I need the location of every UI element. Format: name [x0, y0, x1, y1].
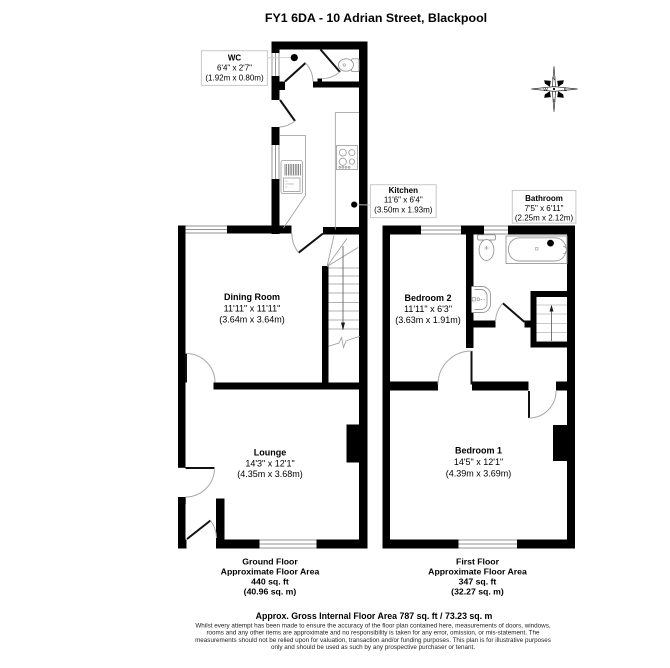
svg-text:(1.92m x 0.80m): (1.92m x 0.80m) — [205, 74, 264, 83]
svg-text:11'6" x 6'4": 11'6" x 6'4" — [384, 196, 423, 205]
svg-text:440 sq. ft: 440 sq. ft — [251, 577, 289, 587]
svg-text:(3.63m x 1.91m): (3.63m x 1.91m) — [395, 315, 461, 325]
svg-text:Lounge: Lounge — [254, 448, 287, 458]
svg-text:rooms and any other items are: rooms and any other items are approximat… — [206, 630, 540, 637]
svg-text:Bathroom: Bathroom — [525, 194, 563, 203]
svg-text:(32.27 sq. m): (32.27 sq. m) — [451, 587, 504, 597]
svg-text:11'11" x 6'3": 11'11" x 6'3" — [404, 304, 452, 314]
svg-text:(2.25m x 2.12m): (2.25m x 2.12m) — [515, 213, 574, 222]
svg-text:14'5" x 12'1": 14'5" x 12'1" — [454, 457, 503, 467]
svg-text:Ground Floor: Ground Floor — [242, 557, 298, 567]
svg-text:WC: WC — [228, 54, 242, 63]
svg-text:Approximate Floor Area: Approximate Floor Area — [221, 567, 320, 577]
svg-text:only and should be used as suc: only and should be used as such by any p… — [271, 644, 475, 651]
svg-text:Kitchen: Kitchen — [389, 186, 418, 195]
svg-text:(40.96 sq. m): (40.96 sq. m) — [244, 587, 297, 597]
svg-text:Approximate Floor Area: Approximate Floor Area — [428, 567, 527, 577]
svg-text:Bedroom 2: Bedroom 2 — [404, 293, 451, 303]
svg-text:11'11" x 11'11": 11'11" x 11'11" — [224, 304, 281, 314]
svg-text:Whilst every attempt has been: Whilst every attempt has been made to en… — [195, 623, 551, 630]
svg-text:6'4" x 2'7": 6'4" x 2'7" — [217, 64, 252, 73]
svg-text:W: W — [543, 87, 548, 92]
svg-text:Approx. Gross Internal Floor A: Approx. Gross Internal Floor Area 787 sq… — [256, 611, 493, 621]
svg-text:(3.64m x 3.64m): (3.64m x 3.64m) — [219, 315, 285, 325]
svg-text:First Floor: First Floor — [456, 557, 500, 567]
svg-text:measurements should not be rel: measurements should not be relied upon f… — [195, 637, 551, 644]
svg-text:14'3" x 12'1": 14'3" x 12'1" — [245, 459, 294, 469]
svg-text:Bedroom 1: Bedroom 1 — [455, 446, 502, 456]
svg-text:FY1 6DA - 10 Adrian Street, Bl: FY1 6DA - 10 Adrian Street, Blackpool — [265, 11, 487, 25]
svg-text:N: N — [552, 76, 555, 81]
svg-text:S: S — [552, 98, 555, 103]
svg-text:Dining Room: Dining Room — [224, 292, 280, 302]
svg-text:7'5" x 6'11": 7'5" x 6'11" — [525, 204, 564, 213]
svg-text:(4.39m x 3.69m): (4.39m x 3.69m) — [446, 469, 512, 479]
svg-text:E: E — [564, 87, 567, 92]
svg-text:(4.35m x 3.68m): (4.35m x 3.68m) — [237, 469, 303, 479]
svg-text:347 sq. ft: 347 sq. ft — [459, 577, 497, 587]
svg-text:(3.50m x 1.93m): (3.50m x 1.93m) — [374, 205, 433, 214]
